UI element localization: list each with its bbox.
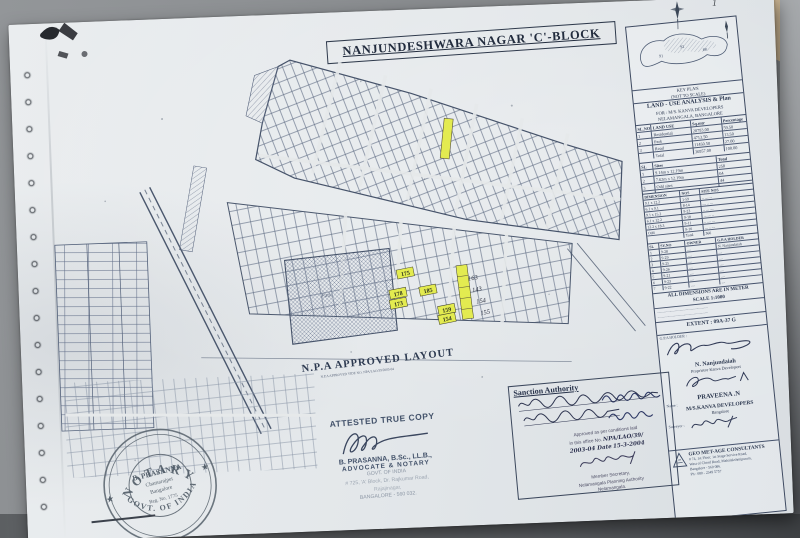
- key-map-box: 91 92 88: [626, 17, 742, 92]
- svg-text:88: 88: [702, 47, 706, 52]
- consultant-box: GEO MET-AGE CONSULTANTS # 74, 1st Floor,…: [669, 440, 783, 497]
- sanction-authority-box: Sanction Authority Approved as per condi…: [508, 372, 680, 500]
- svg-text:92: 92: [680, 44, 684, 49]
- star-icon: ★: [105, 493, 115, 505]
- approval-stamp: Approved as per conditions laid in this …: [543, 421, 676, 500]
- key-map-drawing: 91 92 88: [628, 18, 740, 88]
- svg-text:91: 91: [659, 53, 663, 58]
- handwritten-page-number: 1: [712, 0, 717, 9]
- park-area: Park: [284, 248, 397, 344]
- plot-number: 154: [442, 316, 452, 324]
- photo-of-layout-document: NANJUNDESHWARA NAGAR 'C'-BLOCK 1: [0, 0, 800, 538]
- attested-true-copy-stamp: ATTESTED TRUE COPY B. PRASANNA, B.Sc., L…: [304, 409, 467, 531]
- npa-approved-label: N.P.A APPROVED LAYOUT N.P.A APPROVED VID…: [301, 347, 455, 380]
- signature-block: G.P.A HOLDER : N. Nanjundaiah Proprietor…: [657, 325, 778, 452]
- hatched-road-strip: [179, 166, 206, 252]
- park-label: Park: [322, 292, 333, 299]
- road-lines: [567, 241, 645, 334]
- paper-sheet: NANJUNDESHWARA NAGAR 'C'-BLOCK 1: [8, 0, 793, 538]
- star-icon: ★: [200, 461, 210, 473]
- keymap-north-icon: [724, 20, 729, 38]
